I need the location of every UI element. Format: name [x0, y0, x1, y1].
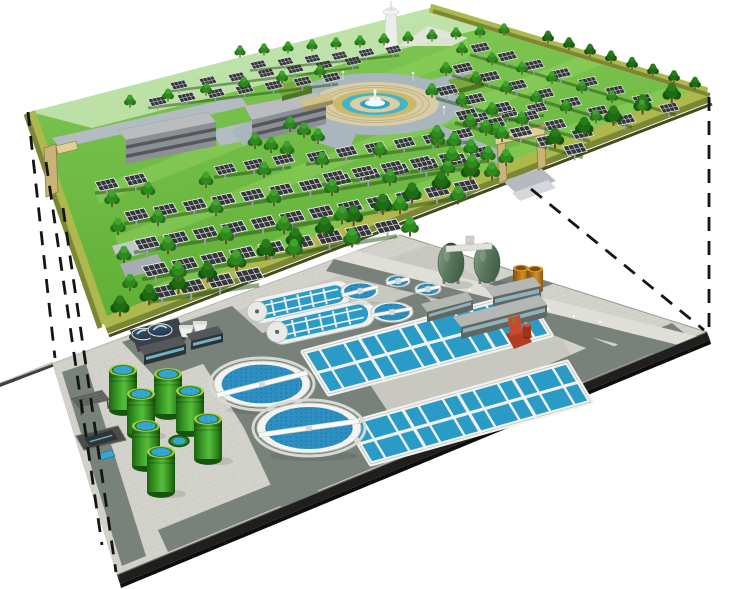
cutaway-illustration — [0, 0, 740, 589]
tree — [234, 45, 245, 57]
walkway-bollard — [573, 315, 575, 317]
solar-park-over-treatment-plant-rendering — [0, 0, 740, 589]
walkway-bollard — [599, 321, 601, 323]
walkway-bollard — [469, 289, 471, 291]
walkway-bollard — [547, 308, 549, 310]
sunken-tank — [169, 436, 189, 447]
